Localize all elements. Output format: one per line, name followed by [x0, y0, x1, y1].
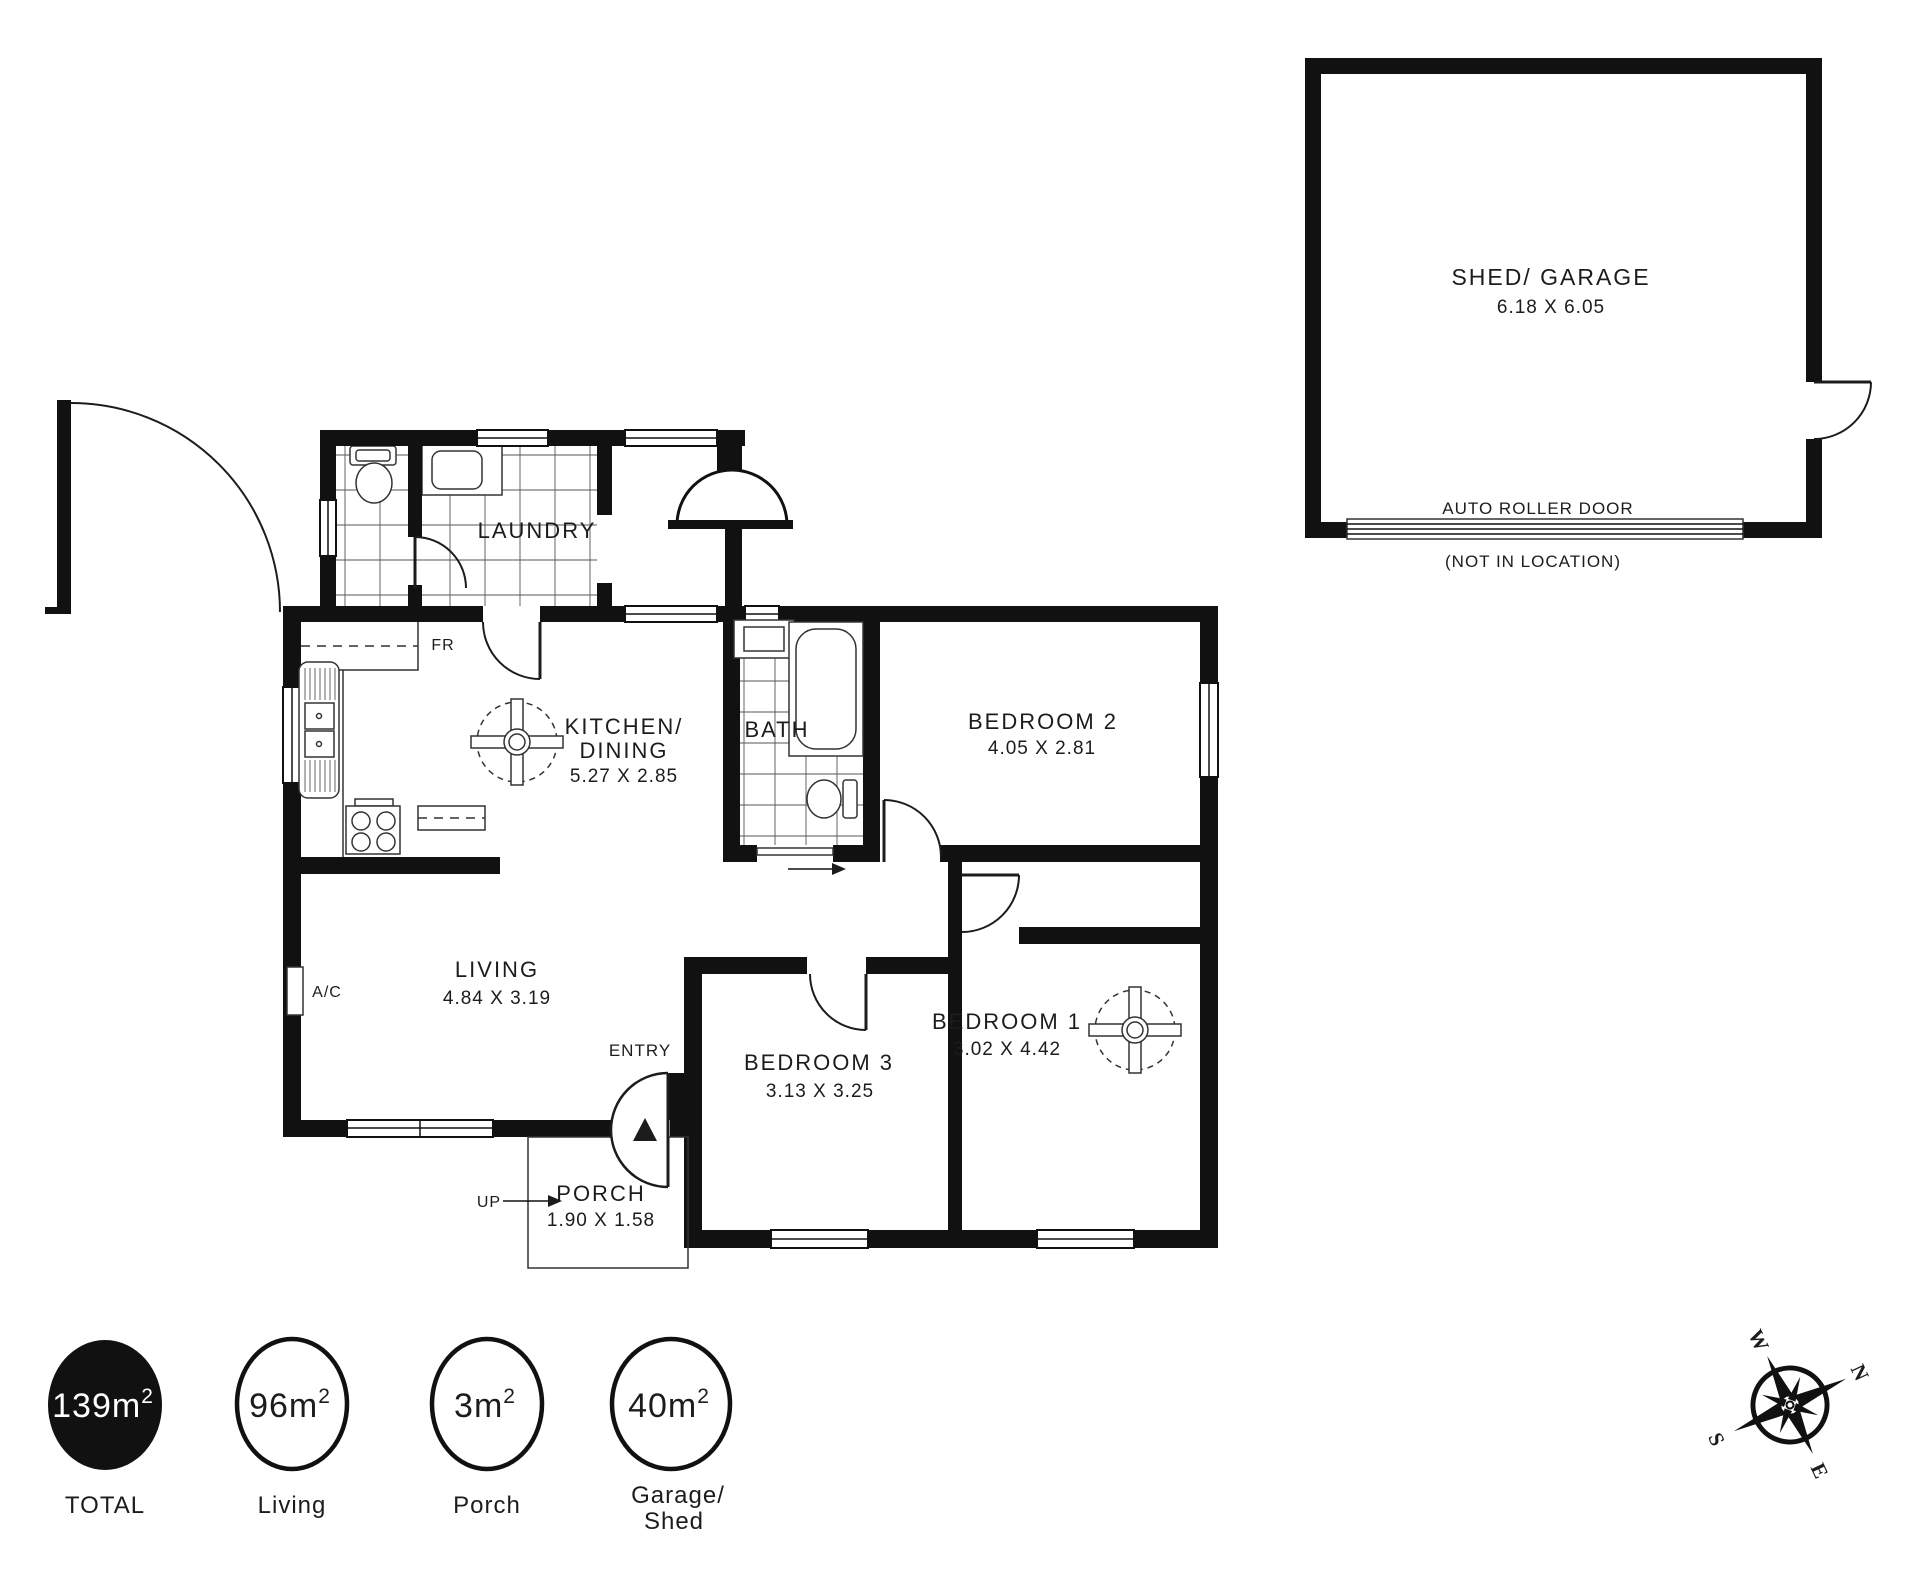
window-living [347, 1120, 493, 1137]
laundry-block: LAUNDRY [320, 430, 793, 606]
compass-w: W [1743, 1326, 1774, 1355]
label-bath: BATH [744, 717, 809, 742]
wc-toilet-icon [350, 446, 396, 503]
compass-n: N [1846, 1361, 1874, 1385]
floor-plan-page: LAUNDRY [0, 0, 1920, 1581]
roller-door [1347, 519, 1743, 539]
label-roller-door: AUTO ROLLER DOOR [1442, 499, 1633, 518]
window-rear-porch-top [625, 430, 717, 446]
legend-total-label: TOTAL [65, 1492, 145, 1519]
side-gate [45, 400, 280, 614]
window-laundry-rear [477, 430, 548, 446]
label-bedroom3: BEDROOM 3 [744, 1050, 894, 1075]
label-up: UP [477, 1194, 501, 1211]
dims-bedroom3: 3.13 X 3.25 [766, 1081, 874, 1102]
legend-garage-label2: Shed [644, 1508, 704, 1535]
label-bedroom2: BEDROOM 2 [968, 709, 1118, 734]
bedroom3-door [810, 974, 866, 1030]
dims-shed: 6.18 X 6.05 [1497, 297, 1605, 318]
stove-icon [346, 799, 400, 854]
laundry-tub-icon [422, 445, 502, 495]
label-porch: PORCH [556, 1181, 645, 1206]
legend-living: 96m2 Living [237, 1339, 347, 1519]
shed-door [1814, 382, 1871, 439]
legend-porch-sup: 2 [503, 1385, 516, 1408]
window-bedroom1 [1037, 1230, 1134, 1248]
bedroom2-room: BEDROOM 2 4.05 X 2.81 [968, 709, 1118, 759]
legend-porch: 3m2 Porch [432, 1339, 542, 1519]
svg-text:139m2: 139m2 [52, 1385, 154, 1425]
note-roller-door: (NOT IN LOCATION) [1445, 552, 1621, 571]
main-house-walls [283, 606, 1218, 1248]
label-kitchen: KITCHEN/ [565, 714, 684, 739]
bath-room: BATH [734, 620, 863, 845]
kitchen-sink-icon [299, 662, 339, 798]
living-room: A/C LIVING 4.84 X 3.19 [287, 957, 551, 1015]
dims-porch: 1.90 X 1.58 [547, 1210, 655, 1231]
floor-plan-svg: LAUNDRY [0, 0, 1920, 1581]
label-bedroom1: BEDROOM 1 [932, 1009, 1082, 1034]
dims-kitchen: 5.27 X 2.85 [570, 766, 678, 787]
label-living: LIVING [455, 957, 539, 982]
window-wc [320, 500, 336, 556]
ceiling-fan-icon [471, 699, 563, 785]
legend: 139m2 TOTAL 96m2 Living 3m2 Porch 40m2 G… [48, 1339, 730, 1535]
legend-porch-value: 3m [454, 1387, 503, 1425]
window-bedroom2 [1200, 683, 1218, 777]
kitchen-room: FR KITCHEN/ DINING 5.27 X 2.85 [299, 622, 683, 857]
ac-unit: A/C [287, 967, 342, 1015]
legend-total-sup: 2 [141, 1385, 154, 1408]
laundry-door [415, 537, 466, 588]
kitchen-bench [418, 806, 485, 830]
legend-garage-sup: 2 [697, 1385, 710, 1408]
compass-s: S [1703, 1429, 1730, 1450]
legend-living-value: 96m [249, 1387, 318, 1425]
legend-total-value: 139m [52, 1387, 141, 1425]
label-shed: SHED/ GARAGE [1451, 264, 1650, 290]
kitchen-door [483, 622, 540, 679]
bath-toilet-icon [807, 780, 857, 818]
legend-garage-label: Garage/ [631, 1482, 725, 1509]
label-laundry: LAUNDRY [478, 518, 597, 543]
bedroom2-door [884, 800, 941, 862]
legend-living-sup: 2 [318, 1385, 331, 1408]
compass-rose: N S E W [1671, 1293, 1904, 1516]
shed-room: SHED/ GARAGE 6.18 X 6.05 AUTO ROLLER DOO… [1305, 58, 1871, 571]
window-rear-porch-bottom [625, 606, 717, 622]
window-bedroom3 [771, 1230, 868, 1248]
up-arrow: UP [477, 1194, 562, 1211]
legend-garage-value: 40m [628, 1387, 697, 1425]
dims-bedroom1: 3.02 X 4.42 [953, 1039, 1061, 1060]
ceiling-fan-icon-bed1 [1089, 987, 1181, 1073]
compass-e: E [1806, 1459, 1834, 1482]
dims-living: 4.84 X 3.19 [443, 988, 551, 1009]
label-entry: ENTRY [609, 1041, 671, 1060]
windows [283, 430, 1218, 1248]
vanity-icon [734, 620, 794, 658]
label-fridge: FR [431, 637, 454, 654]
bedroom3-room: BEDROOM 3 3.13 X 3.25 [744, 1050, 894, 1102]
porch-area: ENTRY PORCH 1.90 X 1.58 UP [477, 1041, 688, 1268]
legend-total: 139m2 TOTAL [48, 1340, 162, 1519]
legend-garage: 40m2 Garage/ Shed [612, 1339, 730, 1535]
label-ac: A/C [312, 984, 342, 1001]
bath-sliding-door [757, 848, 846, 875]
gate-door-arc [71, 403, 280, 612]
rainwater-tank [668, 470, 793, 529]
label-kitchen-2: DINING [580, 738, 669, 763]
legend-living-label: Living [258, 1492, 327, 1519]
entry-door [611, 1073, 668, 1187]
dims-bedroom2: 4.05 X 2.81 [988, 738, 1096, 759]
bedroom1-door [962, 875, 1019, 932]
bedroom1-room: BEDROOM 1 3.02 X 4.42 [932, 987, 1181, 1073]
legend-porch-label: Porch [453, 1492, 521, 1519]
